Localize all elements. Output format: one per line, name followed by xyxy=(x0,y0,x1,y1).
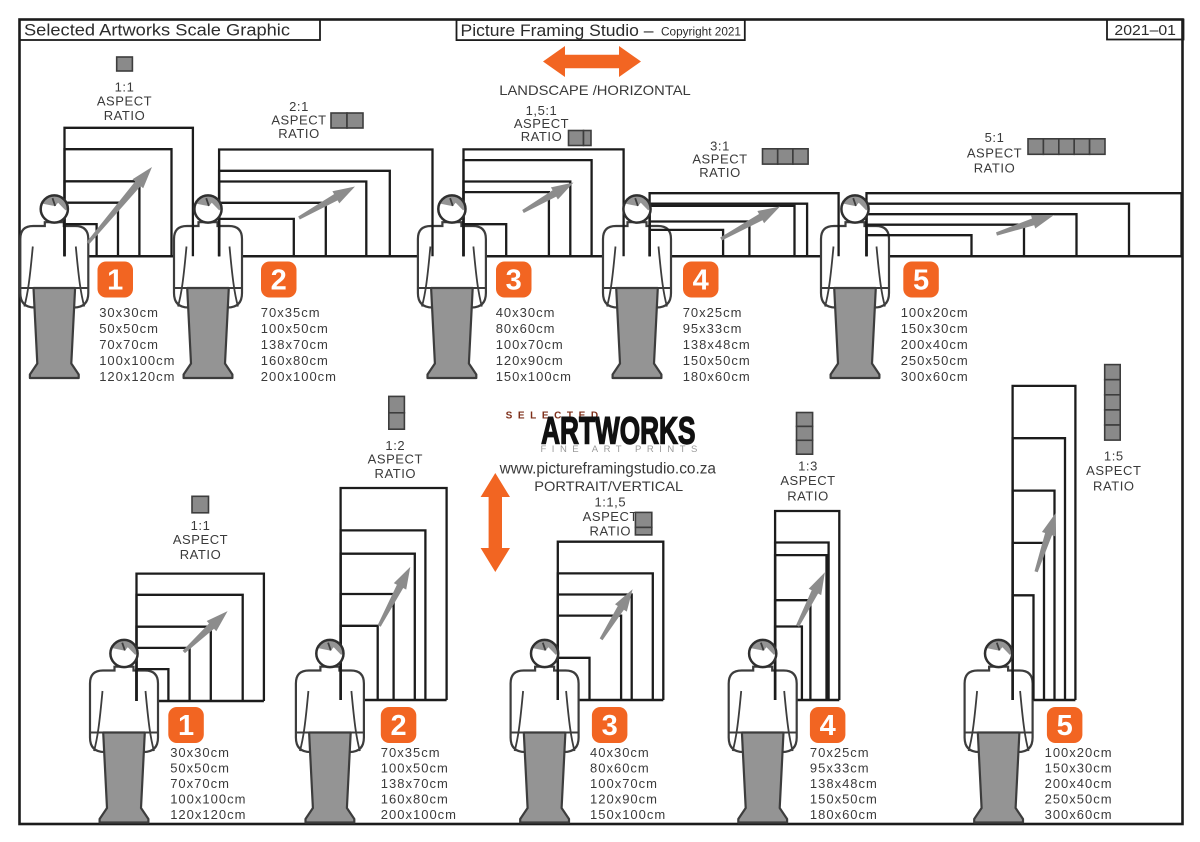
svg-text:3: 3 xyxy=(506,265,522,297)
svg-text:40x30cm: 40x30cm xyxy=(590,745,650,760)
svg-text:3: 3 xyxy=(602,710,618,742)
svg-text:150x30cm: 150x30cm xyxy=(901,321,969,336)
svg-text:100x100cm: 100x100cm xyxy=(170,792,246,807)
svg-text:www.pictureframingstudio.co.za: www.pictureframingstudio.co.za xyxy=(499,460,717,477)
svg-text:200x100cm: 200x100cm xyxy=(381,807,457,822)
svg-text:PORTRAIT/VERTICAL: PORTRAIT/VERTICAL xyxy=(534,478,683,494)
svg-text:FINE ART PRINTS: FINE ART PRINTS xyxy=(541,444,703,455)
svg-text:300x60cm: 300x60cm xyxy=(901,369,969,384)
svg-text:ASPECT: ASPECT xyxy=(1086,463,1141,478)
svg-text:ASPECT: ASPECT xyxy=(368,452,423,467)
svg-text:70x70cm: 70x70cm xyxy=(170,776,230,791)
svg-text:250x50cm: 250x50cm xyxy=(901,353,969,368)
svg-text:RATIO: RATIO xyxy=(521,129,563,144)
svg-text:250x50cm: 250x50cm xyxy=(1045,792,1113,807)
svg-text:120x90cm: 120x90cm xyxy=(590,792,658,807)
svg-text:1:1: 1:1 xyxy=(115,80,135,95)
svg-text:ASPECT: ASPECT xyxy=(967,145,1022,160)
svg-text:RATIO: RATIO xyxy=(1093,478,1135,493)
svg-text:ASPECT: ASPECT xyxy=(173,532,228,547)
svg-text:70x25cm: 70x25cm xyxy=(810,745,870,760)
svg-text:80x60cm: 80x60cm xyxy=(590,760,650,775)
svg-text:100x20cm: 100x20cm xyxy=(901,305,969,320)
svg-text:100x20cm: 100x20cm xyxy=(1045,745,1113,760)
svg-text:RATIO: RATIO xyxy=(974,161,1016,176)
svg-text:70x35cm: 70x35cm xyxy=(381,745,441,760)
svg-text:1: 1 xyxy=(178,710,194,742)
svg-text:138x70cm: 138x70cm xyxy=(381,776,449,791)
svg-text:120x120cm: 120x120cm xyxy=(99,369,175,384)
svg-text:LANDSCAPE /HORIZONTAL: LANDSCAPE /HORIZONTAL xyxy=(499,82,691,98)
svg-text:2021–01: 2021–01 xyxy=(1114,23,1176,39)
svg-text:180x60cm: 180x60cm xyxy=(683,369,751,384)
svg-text:30x30cm: 30x30cm xyxy=(170,745,230,760)
svg-text:100x70cm: 100x70cm xyxy=(590,776,658,791)
svg-text:50x50cm: 50x50cm xyxy=(170,760,230,775)
svg-text:150x50cm: 150x50cm xyxy=(810,792,878,807)
svg-text:4: 4 xyxy=(820,710,836,742)
svg-text:2: 2 xyxy=(390,710,406,742)
svg-text:80x60cm: 80x60cm xyxy=(496,321,556,336)
svg-text:200x100cm: 200x100cm xyxy=(261,369,337,384)
svg-text:ASPECT: ASPECT xyxy=(583,509,638,524)
svg-text:Selected Artworks Scale Graphi: Selected Artworks Scale Graphic xyxy=(24,22,290,40)
svg-text:180x60cm: 180x60cm xyxy=(810,807,878,822)
svg-text:95x33cm: 95x33cm xyxy=(810,760,870,775)
svg-text:30x30cm: 30x30cm xyxy=(99,305,159,320)
svg-text:1:1,5: 1:1,5 xyxy=(594,495,626,510)
svg-text:1:3: 1:3 xyxy=(798,458,818,473)
svg-text:300x60cm: 300x60cm xyxy=(1045,807,1113,822)
svg-text:138x70cm: 138x70cm xyxy=(261,337,329,352)
svg-text:120x120cm: 120x120cm xyxy=(170,807,246,822)
svg-text:4: 4 xyxy=(693,265,709,297)
svg-text:150x30cm: 150x30cm xyxy=(1045,760,1113,775)
svg-text:RATIO: RATIO xyxy=(590,523,632,538)
svg-text:70x35cm: 70x35cm xyxy=(261,305,321,320)
svg-text:50x50cm: 50x50cm xyxy=(99,321,159,336)
svg-text:100x100cm: 100x100cm xyxy=(99,353,175,368)
svg-text:5: 5 xyxy=(913,265,929,297)
svg-text:5:1: 5:1 xyxy=(985,130,1005,145)
svg-text:RATIO: RATIO xyxy=(104,108,146,123)
svg-text:70x25cm: 70x25cm xyxy=(683,305,743,320)
svg-text:2: 2 xyxy=(271,265,287,297)
svg-text:RATIO: RATIO xyxy=(180,547,222,562)
svg-text:RATIO: RATIO xyxy=(787,488,829,503)
svg-text:ASPECT: ASPECT xyxy=(780,473,835,488)
svg-text:150x100cm: 150x100cm xyxy=(496,369,572,384)
svg-text:150x50cm: 150x50cm xyxy=(683,353,751,368)
svg-text:100x70cm: 100x70cm xyxy=(496,337,564,352)
svg-text:1:1: 1:1 xyxy=(191,518,211,533)
svg-text:ASPECT: ASPECT xyxy=(97,94,152,109)
svg-text:120x90cm: 120x90cm xyxy=(496,353,564,368)
svg-text:160x80cm: 160x80cm xyxy=(381,792,449,807)
svg-text:40x30cm: 40x30cm xyxy=(496,305,556,320)
svg-text:RATIO: RATIO xyxy=(699,165,741,180)
svg-text:138x48cm: 138x48cm xyxy=(810,776,878,791)
svg-text:1: 1 xyxy=(107,265,123,297)
svg-text:200x40cm: 200x40cm xyxy=(901,337,969,352)
svg-text:100x50cm: 100x50cm xyxy=(381,760,449,775)
svg-text:Copyright 2021: Copyright 2021 xyxy=(661,27,741,39)
svg-text:RATIO: RATIO xyxy=(278,126,320,141)
svg-text:RATIO: RATIO xyxy=(375,466,417,481)
svg-text:70x70cm: 70x70cm xyxy=(99,337,159,352)
svg-text:160x80cm: 160x80cm xyxy=(261,353,329,368)
svg-text:100x50cm: 100x50cm xyxy=(261,321,329,336)
svg-text:Picture Framing Studio –: Picture Framing Studio – xyxy=(461,22,655,40)
svg-text:1:5: 1:5 xyxy=(1104,449,1124,464)
svg-text:200x40cm: 200x40cm xyxy=(1045,776,1113,791)
svg-text:138x48cm: 138x48cm xyxy=(683,337,751,352)
svg-text:5: 5 xyxy=(1057,710,1073,742)
svg-text:95x33cm: 95x33cm xyxy=(683,321,743,336)
svg-text:150x100cm: 150x100cm xyxy=(590,807,666,822)
